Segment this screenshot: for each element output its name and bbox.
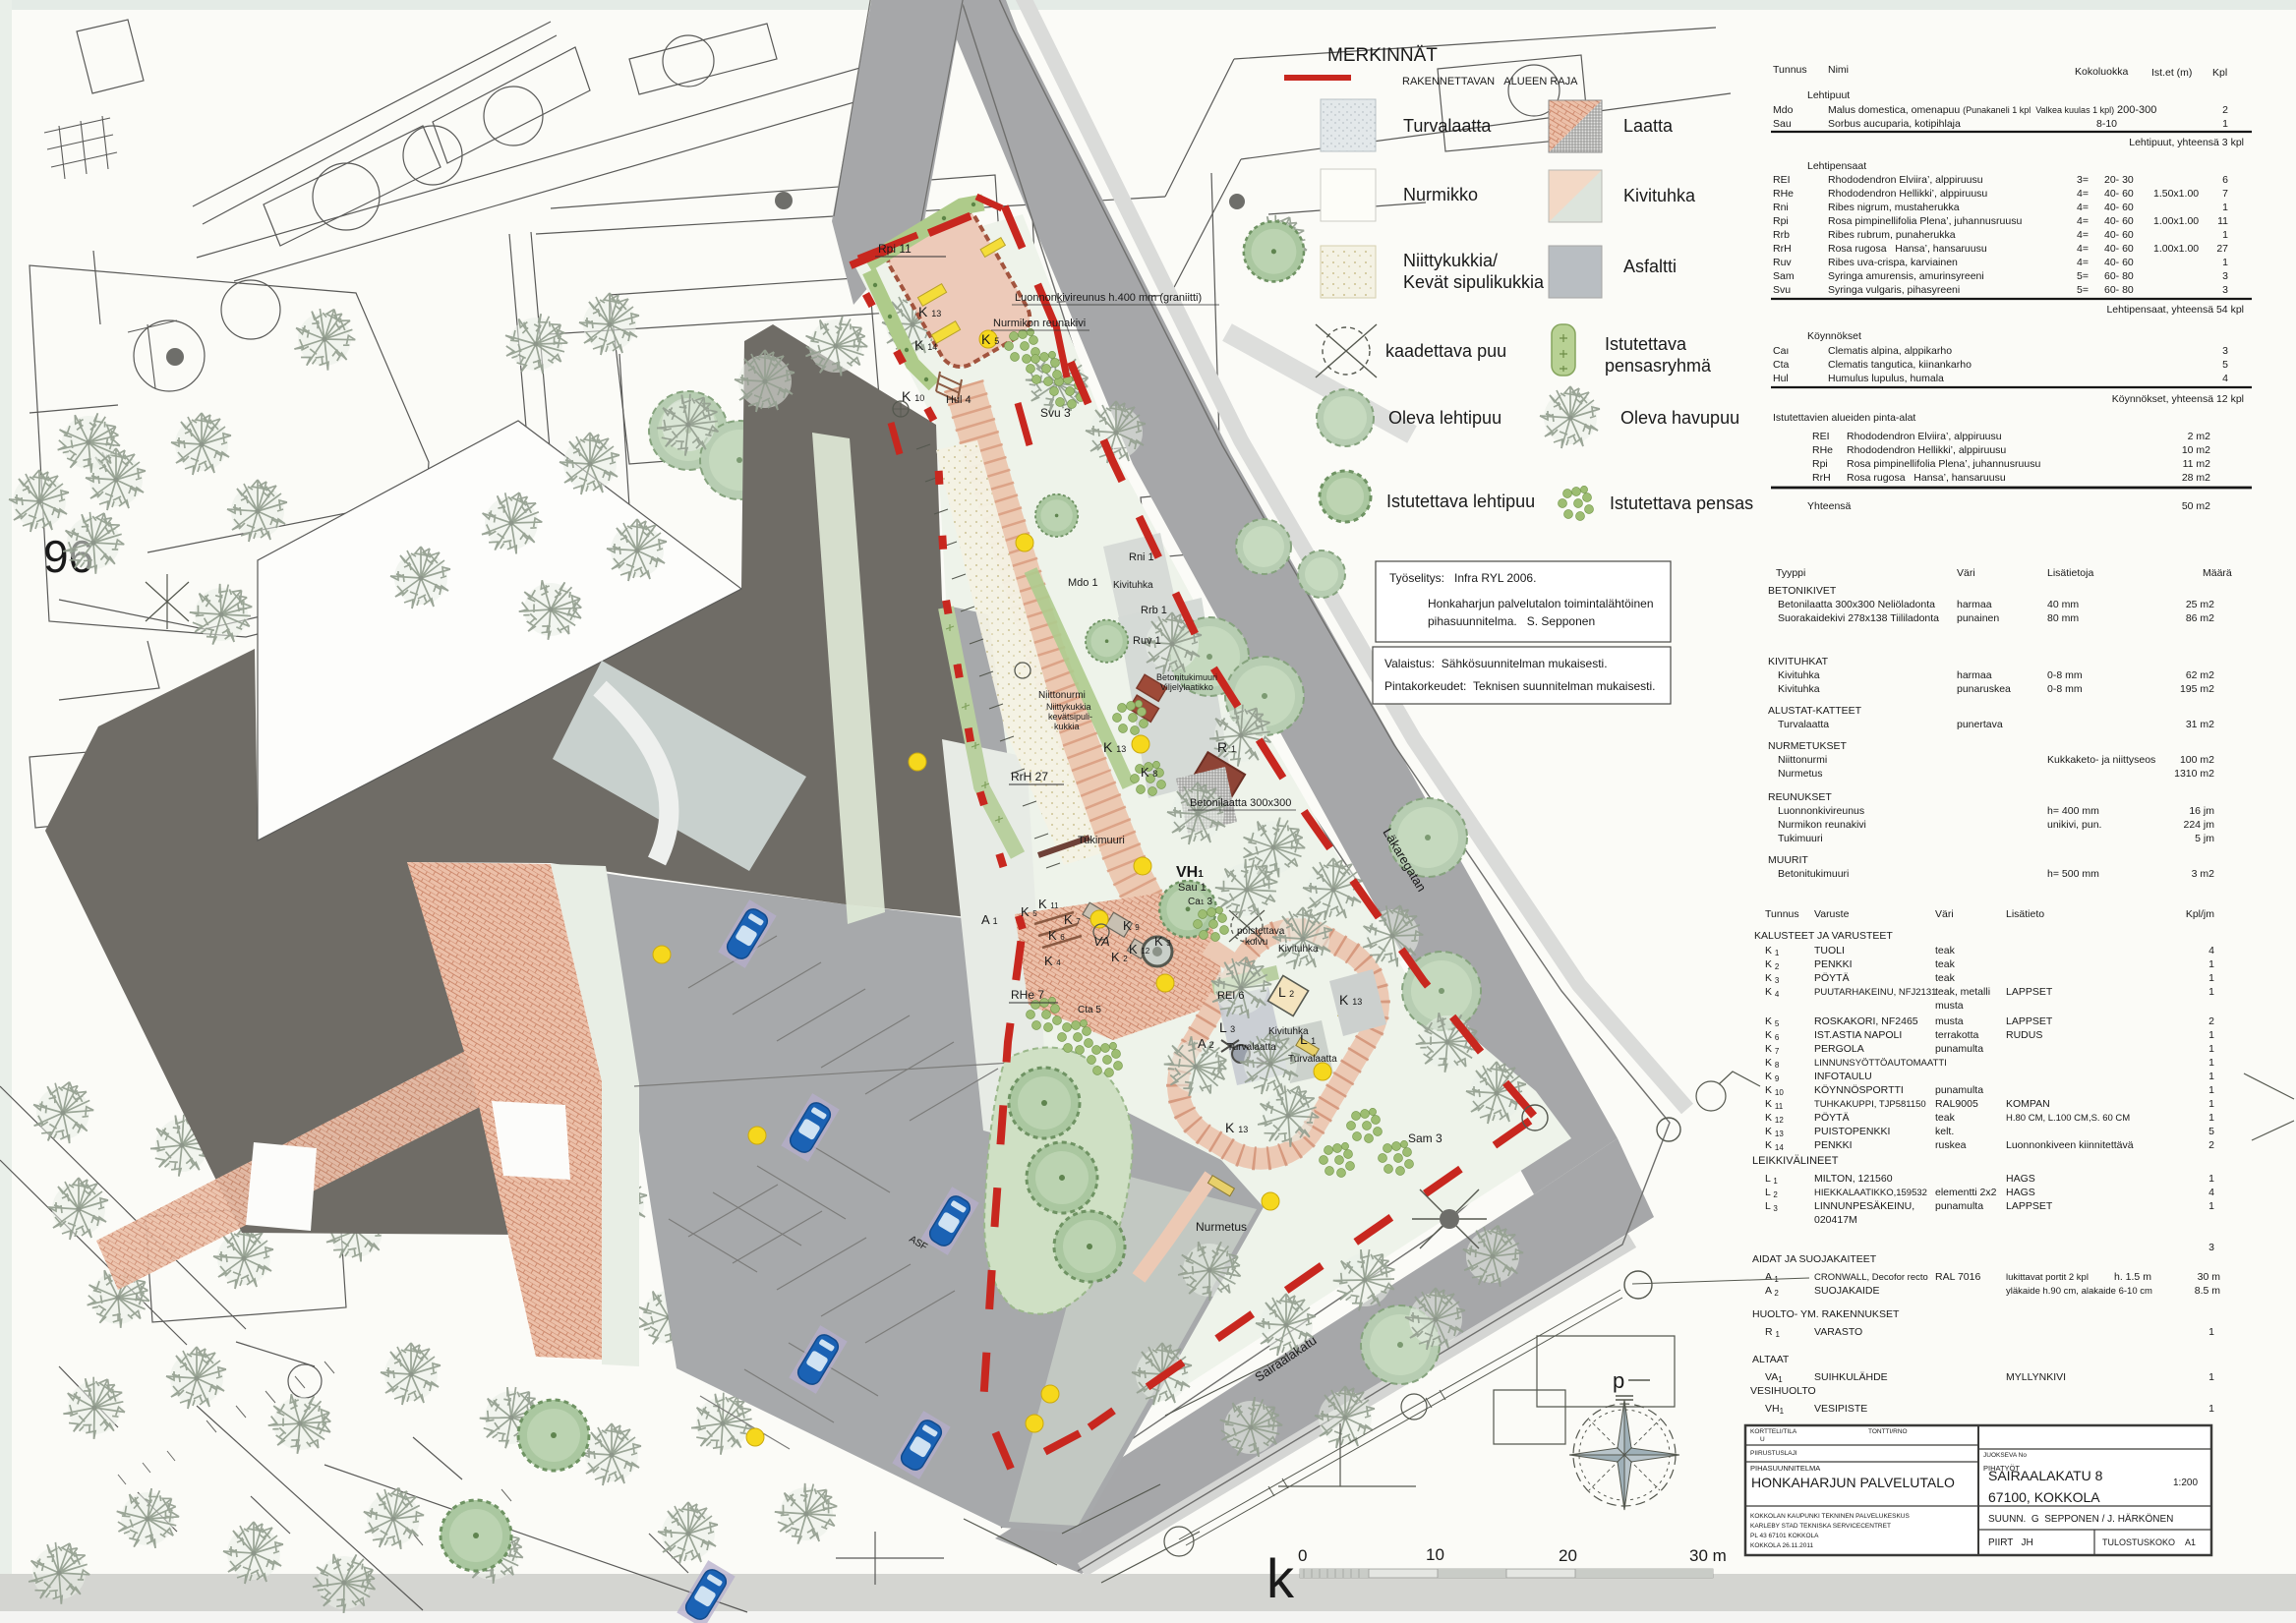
svg-text:Syringa vulgaris, pihasyreeni: Syringa vulgaris, pihasyreeni [1828,284,1960,296]
svg-text:elementti 2x2: elementti 2x2 [1935,1187,1997,1198]
svg-text:Lehtipensaat: Lehtipensaat [1807,160,1866,172]
svg-text:100 m2: 100 m2 [2180,754,2214,766]
svg-text:MUURIT: MUURIT [1768,854,1808,866]
svg-text:Nimi: Nimi [1828,64,1849,76]
svg-text:Rni 1: Rni 1 [1129,551,1154,563]
svg-text:kevätsipuli-: kevätsipuli- [1048,712,1092,722]
svg-text:40- 60: 40- 60 [2104,215,2134,227]
svg-text:ruskea: ruskea [1935,1139,1967,1151]
svg-text:1: 1 [2208,1326,2214,1338]
svg-text:1: 1 [2208,1043,2214,1055]
svg-text:h= 500 mm: h= 500 mm [2047,868,2099,880]
svg-text:PIHASUUNNITELMA: PIHASUUNNITELMA [1750,1464,1820,1473]
svg-text:punamulta: punamulta [1935,1084,1983,1096]
svg-text:Niittonurmi: Niittonurmi [1778,754,1827,766]
svg-text:Lehtipuut, yhteensä 3 kpl: Lehtipuut, yhteensä 3 kpl [2129,137,2244,148]
svg-text:KALUSTEET JA VARUSTEET: KALUSTEET JA VARUSTEET [1754,930,1893,942]
svg-text:Rpi: Rpi [1773,215,1789,227]
svg-text:Malus domestica, omenapuu (Pun: Malus domestica, omenapuu (Punakaneli 1 … [1828,104,2156,116]
svg-text:TUOLI: TUOLI [1814,945,1845,956]
svg-text:1: 1 [2208,1371,2214,1383]
svg-text:REUNUKSET: REUNUKSET [1768,791,1832,803]
svg-text:teak: teak [1935,958,1956,970]
svg-text:LAPPSET: LAPPSET [2006,1015,2053,1027]
svg-text:PÖYTÄ: PÖYTÄ [1814,1112,1850,1124]
svg-text:Kpl/jm: Kpl/jm [2186,908,2214,920]
svg-text:pensasryhmä: pensasryhmä [1605,356,1712,376]
svg-text:1: 1 [2208,1403,2214,1415]
svg-text:1.00x1.00: 1.00x1.00 [2153,215,2199,227]
svg-text:k: k [1266,1547,1295,1609]
svg-text:Caı: Caı [1773,345,1789,357]
svg-text:Sorbus aucuparia, kotipihlaja: Sorbus aucuparia, kotipihlaja [1828,118,1961,130]
svg-text:IST.ASTIA NAPOLI: IST.ASTIA NAPOLI [1814,1029,1902,1041]
svg-text:VARASTO: VARASTO [1814,1326,1862,1338]
svg-text:KÖYNNÖSPORTTI: KÖYNNÖSPORTTI [1814,1084,1904,1096]
svg-text:Rhododendron Hellikki’, alppir: Rhododendron Hellikki’, alppiruusu [1828,188,1987,200]
svg-text:Varuste: Varuste [1814,908,1850,920]
svg-text:Tunnus: Tunnus [1765,908,1799,920]
svg-text:4=: 4= [2077,202,2089,213]
svg-text:RrH: RrH [1773,243,1792,255]
svg-text:30 m: 30 m [1689,1546,1727,1565]
svg-text:REI: REI [1812,431,1830,442]
svg-text:Lehtipuut: Lehtipuut [1807,89,1850,101]
svg-text:RHe: RHe [1812,444,1833,456]
svg-text:Nurmikon reunakivi: Nurmikon reunakivi [993,318,1086,329]
svg-text:KOMPAN: KOMPAN [2006,1098,2050,1110]
svg-text:Svu: Svu [1773,284,1791,296]
svg-text:Lehtipensaat, yhteensä 54 kpl: Lehtipensaat, yhteensä 54 kpl [2106,304,2244,316]
svg-text:40- 60: 40- 60 [2104,229,2134,241]
svg-text:JUOKSEVA No: JUOKSEVA No [1983,1452,2027,1459]
svg-text:Rosa rugosa Hansa’, hansaruu: Rosa rugosa Hansa’, hansaruusu [1828,243,1987,255]
svg-text:Istutettava: Istutettava [1605,334,1687,354]
svg-text:Valaistus: Sähkösuunnitelman: Valaistus: Sähkösuunnitelman mukaisesti. [1384,657,1608,670]
svg-text:Rni: Rni [1773,202,1789,213]
svg-text:Väri: Väri [1935,908,1954,920]
svg-text:p: p [1613,1368,1624,1393]
svg-text:4: 4 [2208,1187,2214,1198]
svg-text:Tukimuuri: Tukimuuri [1778,833,1823,844]
svg-text:20- 30: 20- 30 [2104,174,2134,186]
svg-text:kukkia: kukkia [1054,722,1080,731]
svg-text:Cta 5: Cta 5 [1078,1005,1101,1015]
svg-text:REI: REI [1773,174,1791,186]
svg-text:LAPPSET: LAPPSET [2006,986,2053,998]
svg-text:1: 1 [2222,118,2228,130]
svg-text:28 m2: 28 m2 [2182,472,2210,484]
svg-text:2 m2: 2 m2 [2188,431,2211,442]
svg-text:RUDUS: RUDUS [2006,1029,2042,1041]
svg-text:86 m2: 86 m2 [2186,612,2214,624]
svg-text:Yhteensä: Yhteensä [1807,500,1852,512]
svg-text:3=: 3= [2077,174,2089,186]
svg-text:1: 1 [2222,229,2228,241]
svg-text:punertava: punertava [1957,719,2003,730]
svg-text:Turvalaatta: Turvalaatta [1288,1054,1337,1065]
svg-text:MYLLYNKIVI: MYLLYNKIVI [2006,1371,2066,1383]
svg-text:1: 1 [2208,1098,2214,1110]
svg-text:RHe 7: RHe 7 [1011,988,1044,1002]
svg-text:KIVITUHKAT: KIVITUHKAT [1768,656,1829,667]
svg-text:harmaa: harmaa [1957,599,1992,610]
svg-text:Sam 3: Sam 3 [1408,1131,1442,1145]
svg-text:Ribes uva-crispa, karviainen: Ribes uva-crispa, karviainen [1828,257,1958,268]
svg-text:3: 3 [2222,270,2228,282]
svg-text:Laatta: Laatta [1623,116,1674,136]
svg-text:Ruv: Ruv [1773,257,1792,268]
svg-text:Oleva havupuu: Oleva havupuu [1620,408,1739,428]
svg-text:KOKKOLAN KAUPUNKI TEKNINEN PAL: KOKKOLAN KAUPUNKI TEKNINEN PALVELUKESKUS [1750,1513,1910,1520]
svg-text:Kivituhka: Kivituhka [1778,669,1820,681]
svg-text:teak: teak [1935,972,1956,984]
svg-text:koivu: koivu [1245,937,1267,948]
svg-text:SUOJAKAIDE: SUOJAKAIDE [1814,1285,1880,1297]
svg-text:PENKKI: PENKKI [1814,1139,1853,1151]
svg-text:Pintakorkeudet: Teknisen suun: Pintakorkeudet: Teknisen suunnitelman mu… [1384,679,1655,693]
svg-text:Viljelylaatikko: Viljelylaatikko [1160,682,1213,692]
svg-text:musta: musta [1935,1015,1964,1027]
svg-text:2: 2 [2208,1015,2214,1027]
svg-text:PÖYTÄ: PÖYTÄ [1814,972,1850,984]
svg-text:Niittonurmi: Niittonurmi [1038,690,1086,701]
svg-text:31 m2: 31 m2 [2186,719,2214,730]
svg-text:5: 5 [2208,1126,2214,1137]
svg-text:27: 27 [2216,243,2228,255]
svg-text:Clematis tangutica, kiinankarh: Clematis tangutica, kiinankarho [1828,359,1972,371]
svg-text:SAIRAALAKATU 8: SAIRAALAKATU 8 [1988,1468,2103,1483]
svg-text:Honkaharjun palvelutalon toimi: Honkaharjun palvelutalon toimintalähtöin… [1428,597,1654,610]
svg-text:REI 6: REI 6 [1217,990,1245,1002]
svg-text:Ca1 3: Ca1 3 [1188,897,1212,907]
svg-text:4: 4 [2208,945,2214,956]
svg-text:VESIPISTE: VESIPISTE [1814,1403,1867,1415]
svg-text:Nurmetus: Nurmetus [1778,768,1823,780]
svg-text:1: 1 [2208,1029,2214,1041]
svg-text:7: 7 [2222,188,2228,200]
svg-text:1: 1 [2208,972,2214,984]
svg-text:Tukimuuri: Tukimuuri [1078,835,1125,846]
svg-text:10 m2: 10 m2 [2182,444,2210,456]
svg-text:HONKAHARJUN PALVELUTALO: HONKAHARJUN PALVELUTALO [1751,1475,1955,1490]
svg-text:MILTON, 121560: MILTON, 121560 [1814,1173,1893,1185]
svg-text:SUIHKULÄHDE: SUIHKULÄHDE [1814,1371,1888,1383]
svg-text:8-10: 8-10 [2096,118,2117,130]
svg-text:Köynnökset, yhteensä 12 kpl: Köynnökset, yhteensä 12 kpl [2112,393,2244,405]
svg-text:HUOLTO- YM. RAKENNUKSET: HUOLTO- YM. RAKENNUKSET [1752,1308,1900,1320]
svg-text:Betonitukimuuri: Betonitukimuuri [1156,672,1217,682]
svg-text:4=: 4= [2077,188,2089,200]
svg-text:Sam: Sam [1773,270,1795,282]
svg-text:PIIRT JH: PIIRT JH [1988,1537,2033,1548]
svg-text:punamulta: punamulta [1935,1200,1983,1212]
svg-text:8.5 m: 8.5 m [2195,1285,2221,1297]
svg-text:Turvalaatta: Turvalaatta [1778,719,1829,730]
svg-text:Rosa pimpinellifolia Plena’, j: Rosa pimpinellifolia Plena’, juhannusruu… [1847,458,2040,470]
svg-text:Luonnonkiveen kiinnitettävä: Luonnonkiveen kiinnitettävä [2006,1139,2134,1151]
svg-text:195 m2: 195 m2 [2180,683,2214,695]
svg-text:3 m2: 3 m2 [2192,868,2215,880]
svg-text:yläkaide h.90 cm, alakaide 6-1: yläkaide h.90 cm, alakaide 6-10 cm [2006,1286,2152,1297]
svg-text:60- 80: 60- 80 [2104,284,2134,296]
svg-text:1: 1 [2208,1071,2214,1082]
svg-text:poistettava: poistettava [1237,926,1285,937]
svg-text:VESIHUOLTO: VESIHUOLTO [1750,1385,1816,1397]
svg-text:PUUTARHAKEINU, NFJ2131: PUUTARHAKEINU, NFJ2131 [1814,987,1936,998]
svg-text:Kevät sipulikukkia: Kevät sipulikukkia [1403,272,1545,292]
svg-text:RAKENNETTAVAN ALUEEN RAJA: RAKENNETTAVAN ALUEEN RAJA [1402,76,1578,87]
svg-text:0-8 mm: 0-8 mm [2047,669,2083,681]
svg-text:Rosa pimpinellifolia Plena’, j: Rosa pimpinellifolia Plena’, juhannusruu… [1828,215,2022,227]
svg-text:5=: 5= [2077,270,2089,282]
svg-text:Humulus lupulus, humala: Humulus lupulus, humala [1828,373,1944,384]
svg-text:Rrb 1: Rrb 1 [1141,605,1167,616]
svg-text:1: 1 [2208,986,2214,998]
svg-text:PUISTOPENKKI: PUISTOPENKKI [1814,1126,1890,1137]
svg-text:Nurmikon reunakivi: Nurmikon reunakivi [1778,819,1866,831]
svg-text:1: 1 [2208,1084,2214,1096]
svg-text:Kpl: Kpl [2212,67,2227,79]
svg-text:AIDAT JA SUOJAKAITEET: AIDAT JA SUOJAKAITEET [1752,1253,1877,1265]
svg-text:40 mm: 40 mm [2047,599,2079,610]
svg-text:SUUNN. G SEPPONEN / J. HÄRKÖ: SUUNN. G SEPPONEN / J. HÄRKÖNEN [1988,1513,2173,1525]
svg-text:teak: teak [1935,945,1956,956]
svg-text:20: 20 [1559,1546,1577,1565]
svg-text:punamulta: punamulta [1935,1043,1983,1055]
svg-text:4=: 4= [2077,257,2089,268]
svg-text:Luonnonkivireunus h.400 mm (gr: Luonnonkivireunus h.400 mm (graniitti) [1015,292,1202,304]
svg-text:Tunnus: Tunnus [1773,64,1807,76]
svg-text:1: 1 [2208,958,2214,970]
svg-text:Cta: Cta [1773,359,1790,371]
svg-text:PL 43 67101 KOKKOLA: PL 43 67101 KOKKOLA [1750,1533,1819,1539]
svg-text:4=: 4= [2077,243,2089,255]
svg-text:5=: 5= [2077,284,2089,296]
svg-text:NURMETUKSET: NURMETUKSET [1768,740,1848,752]
svg-text:LINNUNPESÄKEINU,: LINNUNPESÄKEINU, [1814,1200,1914,1212]
svg-text:unikivi, pun.: unikivi, pun. [2047,819,2101,831]
svg-text:Luonnonkivireunus: Luonnonkivireunus [1778,805,1864,817]
svg-text:teak: teak [1935,1112,1956,1124]
svg-text:4=: 4= [2077,229,2089,241]
svg-text:Istutettavien alueiden pinta-a: Istutettavien alueiden pinta-alat [1773,412,1915,424]
svg-text:punainen: punainen [1957,612,1999,624]
svg-text:PIIRUSTUSLAJI: PIIRUSTUSLAJI [1750,1450,1797,1457]
svg-text:Kukkaketo- ja niittyseos: Kukkaketo- ja niittyseos [2047,754,2155,766]
svg-text:ALTAAT: ALTAAT [1752,1354,1790,1365]
svg-text:LEIKKIVÄLINEET: LEIKKIVÄLINEET [1752,1155,1839,1167]
svg-text:KOKKOLA 26.11.2011: KOKKOLA 26.11.2011 [1750,1542,1813,1549]
svg-text:kelt.: kelt. [1935,1126,1954,1137]
svg-text:1310 m2: 1310 m2 [2174,768,2214,780]
svg-text:Tyyppi: Tyyppi [1776,567,1805,579]
svg-text:Lisätieto: Lisätieto [2006,908,2044,920]
svg-text:Betonitukimuuri: Betonitukimuuri [1778,868,1849,880]
svg-text:Ribes nigrum, mustaherukka: Ribes nigrum, mustaherukka [1828,202,1960,213]
svg-text:Niittykukkia/: Niittykukkia/ [1403,251,1498,270]
svg-text:10: 10 [1426,1545,1444,1564]
svg-text:Turvalaatta: Turvalaatta [1227,1042,1276,1053]
svg-text:Rrb: Rrb [1773,229,1790,241]
svg-text:BETONIKIVET: BETONIKIVET [1768,585,1837,597]
svg-text:KARLEBY STAD TEKNISKA SERVICEC: KARLEBY STAD TEKNISKA SERVICECENTRET [1750,1523,1891,1530]
svg-text:60- 80: 60- 80 [2104,270,2134,282]
svg-text:1: 1 [2208,1173,2214,1185]
svg-text:2: 2 [2222,104,2228,116]
svg-text:CRONWALL, Decofor recto: CRONWALL, Decofor recto [1814,1272,1928,1283]
svg-text:Nurmikko: Nurmikko [1403,185,1478,204]
svg-text:Rpi: Rpi [1812,458,1828,470]
svg-text:kaadettava puu: kaadettava puu [1385,341,1506,361]
svg-text:Ribes rubrum, punaherukka: Ribes rubrum, punaherukka [1828,229,1956,241]
svg-text:Svu 3: Svu 3 [1040,406,1071,420]
svg-text:Rpi 11: Rpi 11 [878,242,912,256]
svg-text:3: 3 [2208,1242,2214,1253]
svg-text:PENKKI: PENKKI [1814,958,1853,970]
svg-text:1: 1 [2208,1112,2214,1124]
svg-text:Sau 1: Sau 1 [1178,882,1207,894]
svg-text:lukittavat portit 2 kpl: lukittavat portit 2 kpl [2006,1272,2089,1283]
svg-text:Sau: Sau [1773,118,1792,130]
svg-text:RrH: RrH [1812,472,1831,484]
svg-text:MERKINNÄT: MERKINNÄT [1327,45,1438,66]
svg-text:Työselitys: Infra RYL 2006.: Työselitys: Infra RYL 2006. [1389,571,1536,585]
svg-text:67100, KOKKOLA: 67100, KOKKOLA [1988,1489,2100,1505]
svg-text:1.50x1.00: 1.50x1.00 [2153,188,2199,200]
svg-text:Turvalaatta: Turvalaatta [1403,116,1492,136]
svg-text:harmaa: harmaa [1957,669,1992,681]
svg-text:50 m2: 50 m2 [2182,500,2210,512]
svg-text:2: 2 [2208,1139,2214,1151]
svg-text:25 m2: 25 m2 [2186,599,2214,610]
svg-text:Betonilaatta 300x300 Neliölado: Betonilaatta 300x300 Neliöladonta [1778,599,1935,610]
svg-text:KORTTELI/TILA: KORTTELI/TILA [1750,1428,1797,1435]
svg-text:4=: 4= [2077,215,2089,227]
svg-text:1.00x1.00: 1.00x1.00 [2153,243,2199,255]
svg-text:Kivituhka: Kivituhka [1778,683,1820,695]
svg-text:30 m: 30 m [2198,1271,2221,1283]
svg-text:Rhododendron Hellikki’, alppir: Rhododendron Hellikki’, alppiruusu [1847,444,2006,456]
svg-text:Suorakaidekivi 278x138 Tiilila: Suorakaidekivi 278x138 Tiililadonta [1778,612,1939,624]
svg-text:Hul 4: Hul 4 [946,394,971,406]
svg-text:INFOTAULU: INFOTAULU [1814,1071,1872,1082]
svg-text:Väri: Väri [1957,567,1975,579]
svg-text:Kivituhka: Kivituhka [1623,186,1696,205]
svg-text:HAGS: HAGS [2006,1173,2035,1185]
svg-text:11 m2: 11 m2 [2183,458,2211,470]
svg-text:TUHKAKUPPI, TJP581150: TUHKAKUPPI, TJP581150 [1814,1099,1926,1110]
svg-text:HAGS: HAGS [2006,1187,2035,1198]
svg-text:40- 60: 40- 60 [2104,202,2134,213]
svg-text:PERGOLA: PERGOLA [1814,1043,1864,1055]
svg-text:224 jm: 224 jm [2183,819,2214,831]
svg-text:terrakotta: terrakotta [1935,1029,1979,1041]
svg-text:3: 3 [2222,284,2228,296]
svg-text:Niittykukkia: Niittykukkia [1046,702,1091,712]
svg-text:0-8 mm: 0-8 mm [2047,683,2083,695]
svg-text:ROSKAKORI, NF2465: ROSKAKORI, NF2465 [1814,1015,1918,1027]
svg-text:U: U [1760,1436,1765,1443]
svg-text:RAL 7016: RAL 7016 [1935,1271,1980,1283]
svg-text:pihasuunnitelma. S. Sepponen: pihasuunnitelma. S. Sepponen [1428,614,1595,628]
svg-text:teak, metalli: teak, metalli [1935,986,1990,998]
svg-text:Betonilaatta 300x300: Betonilaatta 300x300 [1190,797,1291,809]
svg-text:5 jm: 5 jm [2195,833,2214,844]
svg-text:LINNUNSYÖTTÖAUTOMAATTI: LINNUNSYÖTTÖAUTOMAATTI [1814,1058,1947,1069]
svg-text:Kokoluokka: Kokoluokka [2075,66,2128,78]
svg-text:HIEKKALAATIKKO,159532: HIEKKALAATIKKO,159532 [1814,1188,1927,1198]
svg-text:Asfaltti: Asfaltti [1623,257,1677,276]
svg-text:RrH 27: RrH 27 [1011,770,1048,783]
svg-text:punaruskea: punaruskea [1957,683,2011,695]
svg-text:1: 1 [2222,202,2228,213]
svg-text:Mdo 1: Mdo 1 [1068,577,1098,589]
svg-text:11: 11 [2217,215,2228,227]
svg-text:Köynnökset: Köynnökset [1807,330,1861,342]
svg-text:RHe: RHe [1773,188,1794,200]
svg-text:Ruv 1: Ruv 1 [1133,635,1161,647]
svg-text:H.80 CM, L.100 CM,S. 60 CM: H.80 CM, L.100 CM,S. 60 CM [2006,1113,2130,1124]
svg-text:1: 1 [2222,257,2228,268]
svg-text:Istutettava pensas: Istutettava pensas [1610,493,1753,513]
svg-text:Kivituhka: Kivituhka [1278,944,1319,955]
svg-text:h. 1.5 m: h. 1.5 m [2114,1271,2151,1283]
svg-text:5: 5 [2222,359,2228,371]
svg-text:40- 60: 40- 60 [2104,188,2134,200]
svg-text:LAPPSET: LAPPSET [2006,1200,2053,1212]
svg-text:Määrä: Määrä [2203,567,2232,579]
svg-text:Istutettava lehtipuu: Istutettava lehtipuu [1386,492,1535,511]
svg-text:VA: VA [1093,934,1110,949]
svg-text:40- 60: 40- 60 [2104,243,2134,255]
svg-text:musta: musta [1935,1000,1964,1012]
svg-text:ALUSTAT-KATTEET: ALUSTAT-KATTEET [1768,705,1862,717]
svg-text:4: 4 [2222,373,2228,384]
svg-text:1: 1 [2208,1200,2214,1212]
svg-text:Syringa amurensis, amurinsyree: Syringa amurensis, amurinsyreeni [1828,270,1984,282]
svg-text:3: 3 [2222,345,2228,357]
svg-text:Rhododendron Elviira’, alppiru: Rhododendron Elviira’, alppiruusu [1847,431,2002,442]
svg-text:80 mm: 80 mm [2047,612,2079,624]
svg-text:62 m2: 62 m2 [2186,669,2214,681]
svg-text:Kivituhka: Kivituhka [1113,580,1153,591]
svg-text:1:200: 1:200 [2173,1478,2198,1488]
svg-text:Mdo: Mdo [1773,104,1794,116]
svg-text:Nurmetus: Nurmetus [1196,1220,1247,1234]
svg-text:TULOSTUSKOKO A1: TULOSTUSKOKO A1 [2102,1537,2196,1547]
svg-text:020417M: 020417M [1814,1214,1857,1226]
svg-text:16 jm: 16 jm [2189,805,2214,817]
svg-text:40- 60: 40- 60 [2104,257,2134,268]
svg-text:Hul: Hul [1773,373,1789,384]
svg-text:Rhododendron Elviira’, alppiru: Rhododendron Elviira’, alppiruusu [1828,174,1983,186]
svg-text:Lisätietoja: Lisätietoja [2047,567,2093,579]
svg-text:h= 400 mm: h= 400 mm [2047,805,2099,817]
svg-text:RAL9005: RAL9005 [1935,1098,1978,1110]
svg-text:Oleva lehtipuu: Oleva lehtipuu [1388,408,1501,428]
svg-text:Ist.et (m): Ist.et (m) [2151,67,2192,79]
svg-text:1: 1 [2208,1057,2214,1069]
svg-text:6: 6 [2222,174,2228,186]
svg-text:Clematis alpina, alppikarho: Clematis alpina, alppikarho [1828,345,1952,357]
svg-text:TONTTI/RNO: TONTTI/RNO [1868,1428,1908,1435]
svg-text:0: 0 [1298,1546,1307,1565]
svg-text:Rosa rugosa Hansa’, hansaruu: Rosa rugosa Hansa’, hansaruusu [1847,472,2006,484]
